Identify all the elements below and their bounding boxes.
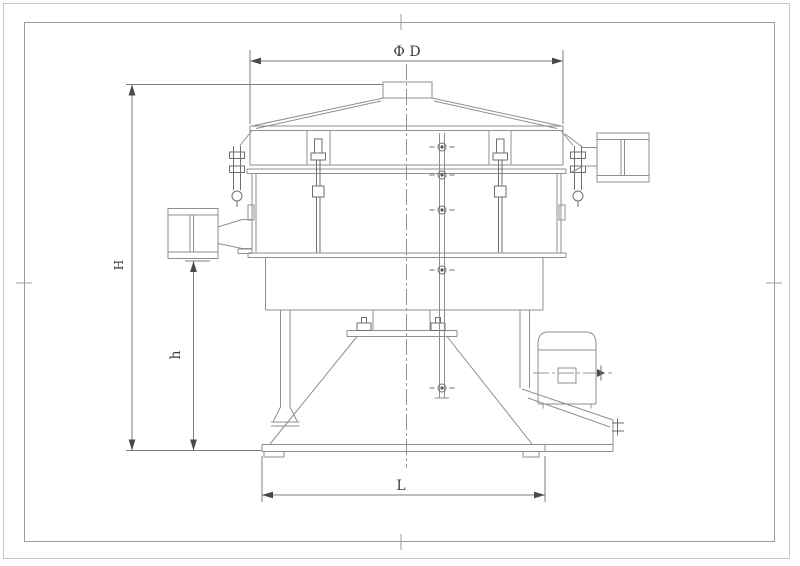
foot-pads	[264, 452, 539, 458]
motor	[522, 332, 624, 445]
base-width-label: L	[396, 478, 405, 494]
right-outlet	[565, 133, 649, 182]
cone-flange-bolts	[357, 318, 445, 331]
terminal-box	[558, 368, 576, 383]
left-leg	[271, 310, 300, 426]
right-leg	[520, 310, 530, 388]
clamp-bolt-right	[493, 139, 508, 253]
inlet-port	[383, 82, 432, 98]
base-plate	[262, 445, 613, 458]
outlet-height-label: h	[168, 350, 184, 359]
lower-frame	[266, 258, 544, 427]
rim-clamp-right	[571, 146, 586, 207]
rim-clamp-left	[230, 146, 245, 207]
left-outlet	[168, 209, 252, 259]
bracket-bolts	[612, 419, 624, 436]
center-clamp-rod	[430, 133, 455, 398]
clamp-band	[230, 131, 586, 254]
sheet-frame	[4, 4, 790, 559]
dimension-base-width: L	[262, 456, 545, 502]
clamp-bolt-left	[311, 139, 326, 253]
dimension-overall-height: H	[112, 85, 383, 451]
diameter-label: Φ D	[393, 44, 420, 60]
drawing-sheet: Φ D H h L	[0, 0, 800, 566]
sieve-outline-drawing: Φ D H h L	[0, 0, 800, 566]
throat	[373, 310, 430, 331]
dimension-outlet-height: h	[168, 261, 210, 451]
motor-bracket	[522, 389, 613, 445]
right-outlet-ferrule	[597, 133, 649, 182]
left-outlet-ferrule	[168, 209, 218, 259]
overall-height-label: H	[112, 260, 126, 270]
base-cone	[270, 318, 532, 445]
